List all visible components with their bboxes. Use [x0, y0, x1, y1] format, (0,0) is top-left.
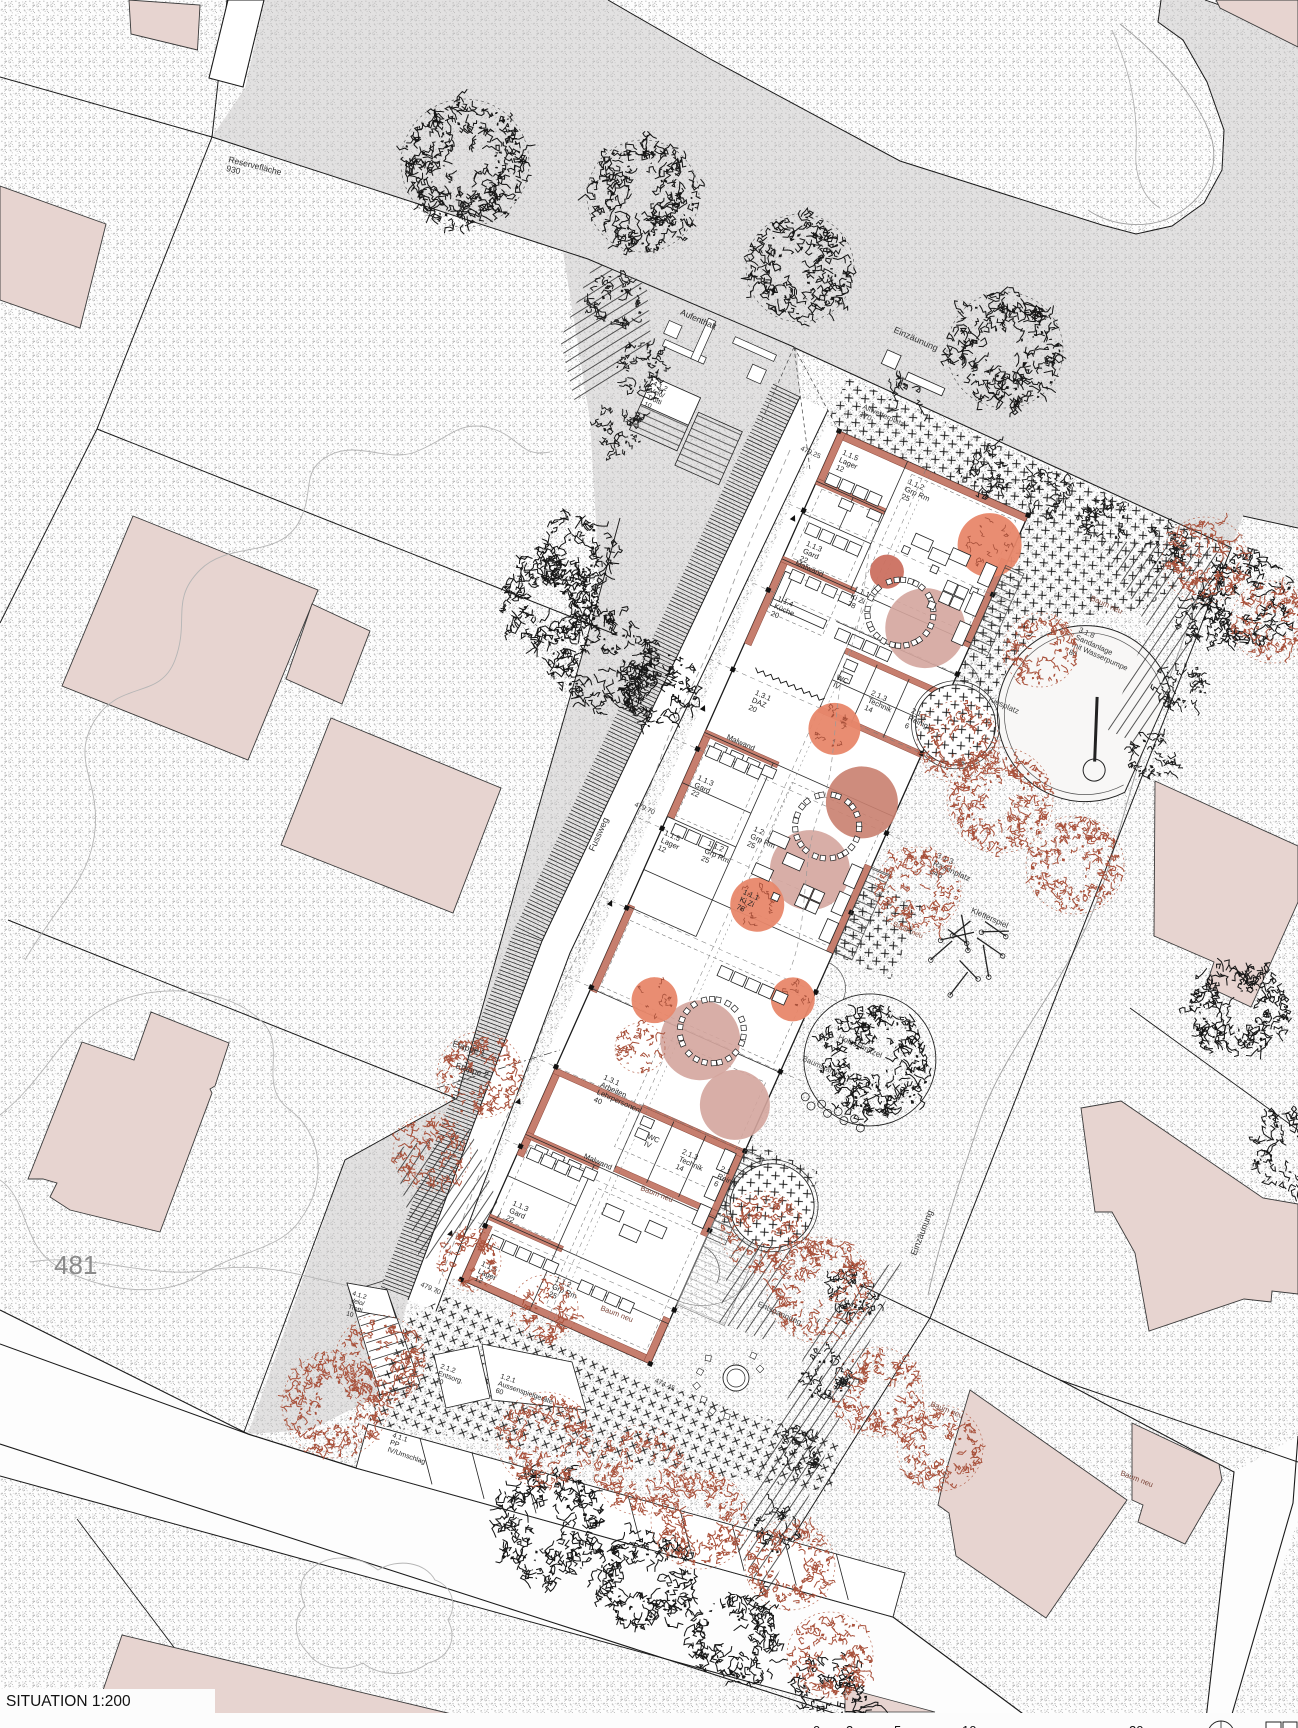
svg-text:10: 10	[962, 1723, 976, 1728]
svg-text:0: 0	[813, 1723, 820, 1728]
svg-text:2: 2	[846, 1723, 853, 1728]
svg-text:481: 481	[54, 1250, 97, 1280]
svg-text:5: 5	[894, 1723, 901, 1728]
svg-text:20: 20	[1129, 1723, 1143, 1728]
svg-text:SITUATION 1:200: SITUATION 1:200	[6, 1693, 131, 1710]
